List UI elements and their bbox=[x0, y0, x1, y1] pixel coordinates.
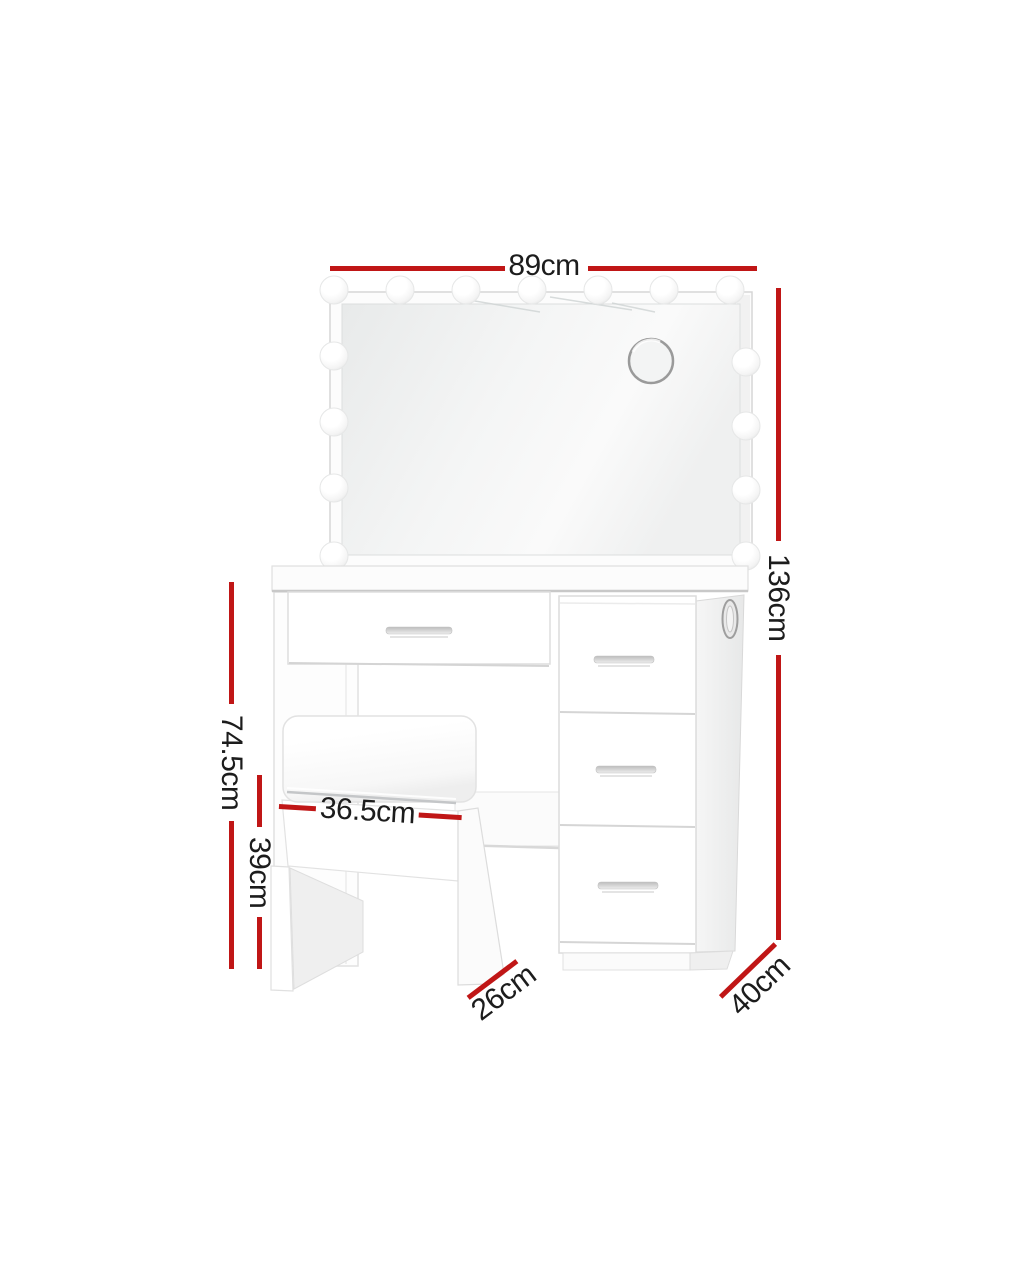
dimension-table-height-label: 74.5cm bbox=[211, 707, 251, 819]
dimension-table-height-line-bottom bbox=[229, 821, 234, 969]
mirror-glass bbox=[342, 304, 740, 555]
drawer-unit-side bbox=[696, 595, 744, 952]
light-bulb bbox=[716, 276, 744, 304]
desk-top bbox=[272, 566, 748, 591]
light-bulb bbox=[732, 412, 760, 440]
desk-drawer-handle bbox=[386, 627, 452, 634]
light-bulb bbox=[650, 276, 678, 304]
dimension-stool-width-label: 36.5cm bbox=[315, 791, 420, 831]
dimension-overall-width-line-right bbox=[588, 266, 757, 271]
light-bulb bbox=[732, 348, 760, 376]
mirror-power-knob-inner bbox=[727, 606, 734, 632]
drawer-handle bbox=[596, 766, 656, 773]
light-bulb bbox=[320, 276, 348, 304]
light-bulb bbox=[320, 408, 348, 436]
drawer-unit-base-side bbox=[690, 951, 733, 970]
drawer-handle bbox=[598, 882, 658, 889]
light-bulb bbox=[584, 276, 612, 304]
drawer-unit-top-line bbox=[560, 603, 695, 604]
dimension-table-height-line-top bbox=[229, 582, 234, 704]
drawer-unit bbox=[559, 596, 696, 953]
dimension-overall-width-line-left bbox=[330, 266, 505, 271]
light-bulb bbox=[320, 342, 348, 370]
dimension-stool-width-line-left bbox=[279, 804, 316, 811]
light-bulb bbox=[732, 476, 760, 504]
drawer-handle bbox=[594, 656, 654, 663]
dimension-overall-height-label: 136cm bbox=[758, 543, 798, 653]
dimension-stool-height-line-bottom bbox=[257, 917, 262, 969]
dimension-stool-width-line-right bbox=[419, 812, 462, 820]
light-bulb bbox=[386, 276, 414, 304]
dimension-overall-width-label: 89cm bbox=[500, 247, 588, 285]
dimension-stool-height-line-top bbox=[257, 775, 262, 827]
stool bbox=[271, 716, 504, 991]
dressing-table-illustration bbox=[0, 0, 1024, 1280]
drawer-unit-base bbox=[563, 953, 690, 970]
dimension-stool-height-label: 39cm bbox=[239, 831, 279, 915]
dimension-overall-height-line-bottom bbox=[776, 655, 781, 940]
light-bulb bbox=[320, 474, 348, 502]
light-bulb bbox=[452, 276, 480, 304]
dimension-overall-height-line-top bbox=[776, 288, 781, 541]
product-dimension-diagram: 89cm 136cm 74.5cm 39cm 36.5cm 26cm 40cm bbox=[0, 0, 1024, 1280]
